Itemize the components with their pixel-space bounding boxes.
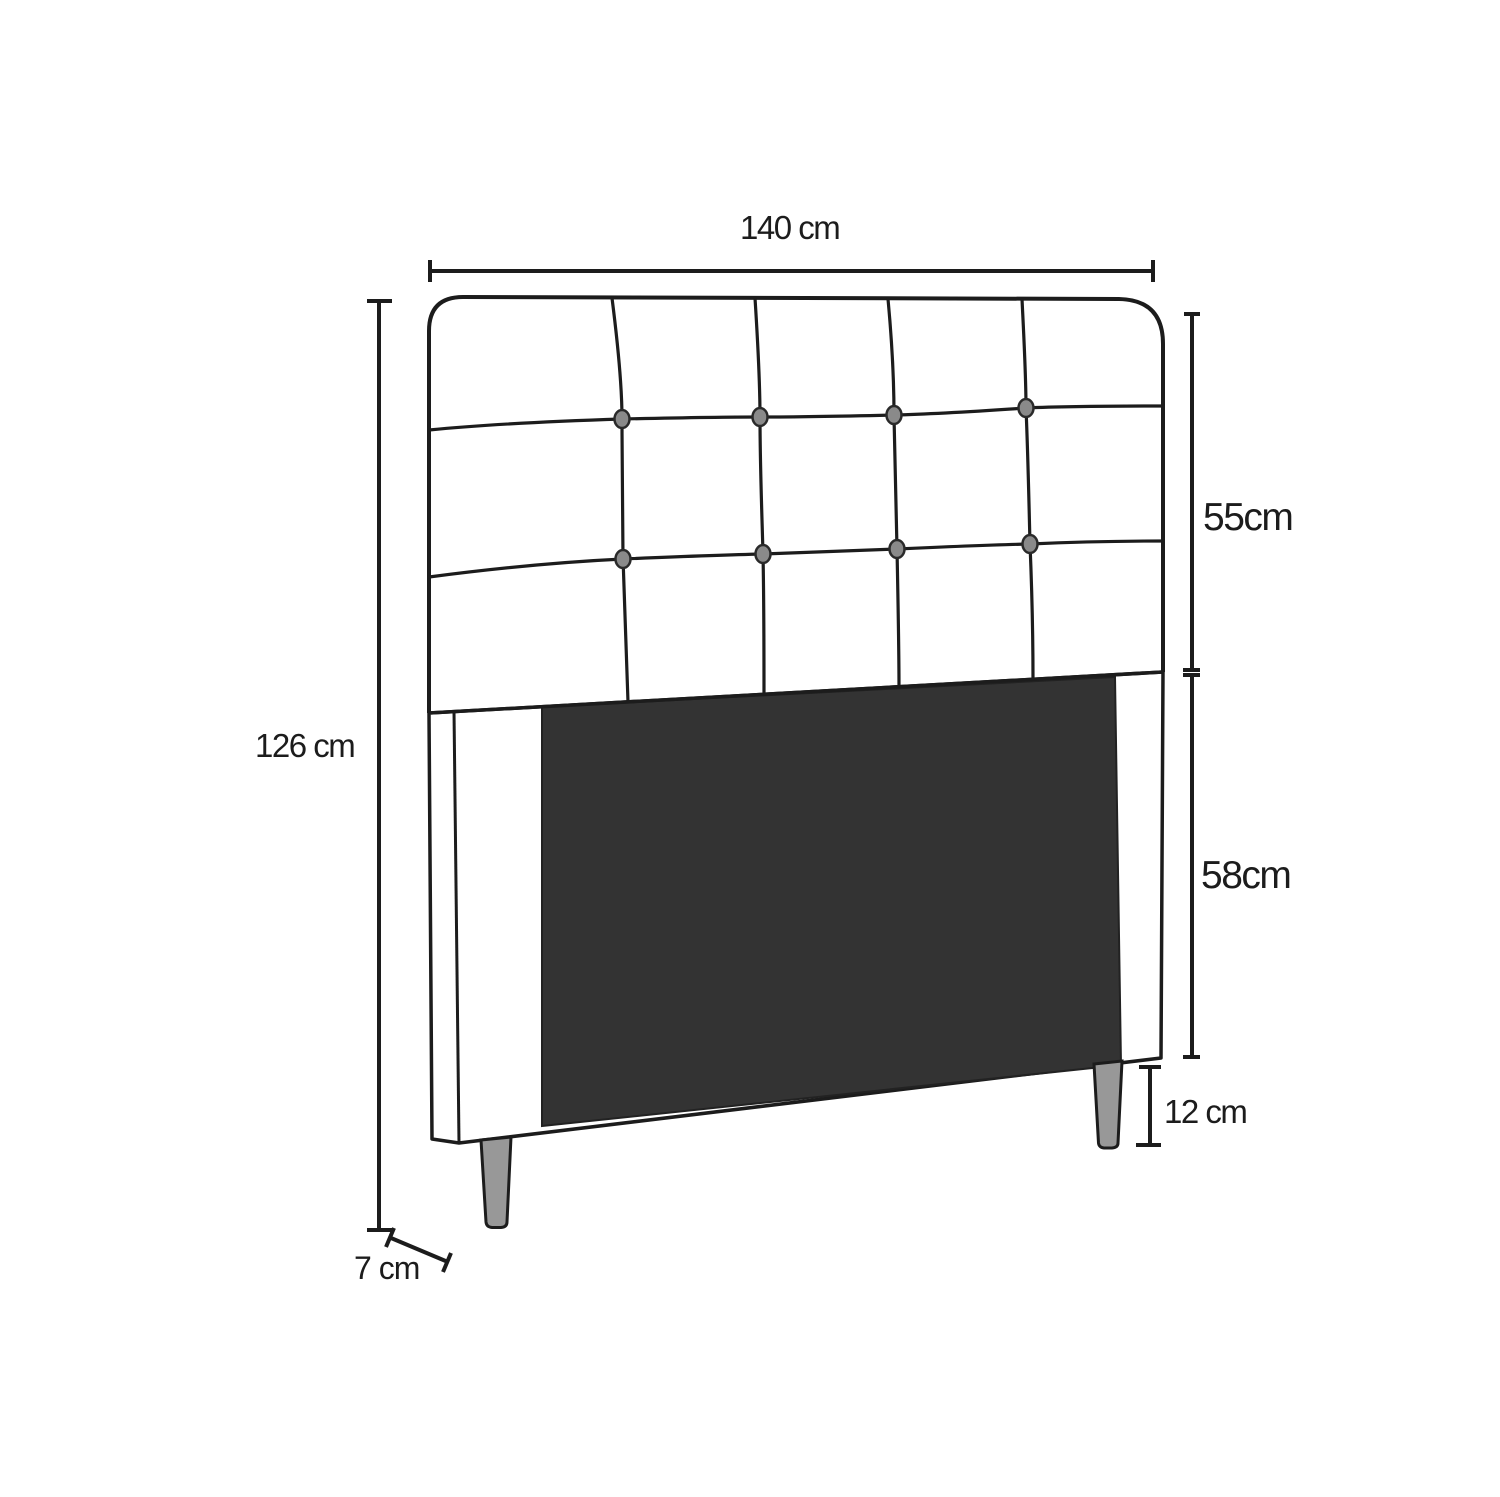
svg-text:126 cm: 126 cm <box>255 727 354 764</box>
svg-text:7 cm: 7 cm <box>354 1250 419 1286</box>
svg-text:12 cm: 12 cm <box>1164 1093 1246 1130</box>
svg-text:140 cm: 140 cm <box>740 209 839 246</box>
svg-text:58cm: 58cm <box>1201 854 1290 897</box>
svg-text:55cm: 55cm <box>1203 496 1292 539</box>
